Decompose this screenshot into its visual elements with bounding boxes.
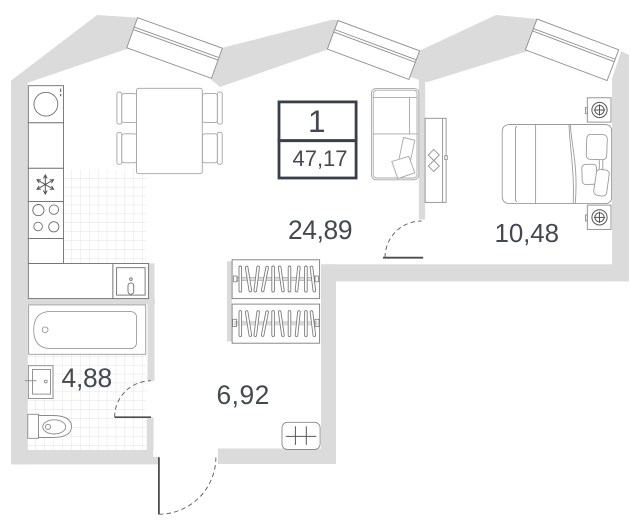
- svg-text:10,48: 10,48: [495, 220, 560, 248]
- svg-text:47,17: 47,17: [293, 146, 348, 171]
- svg-text:6,92: 6,92: [217, 380, 270, 410]
- svg-text:1: 1: [308, 103, 326, 139]
- svg-text:24,89: 24,89: [288, 215, 353, 245]
- svg-text:4,88: 4,88: [62, 363, 113, 393]
